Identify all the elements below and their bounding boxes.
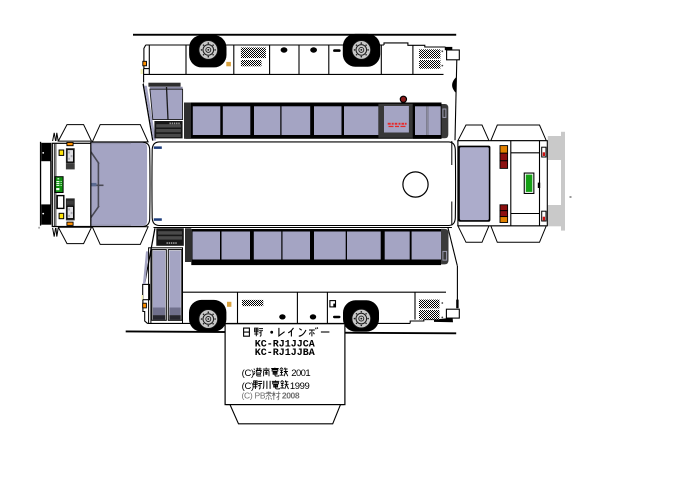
svg-text:KC-RJ1JJBA: KC-RJ1JJBA — [255, 348, 315, 359]
svg-text:2008: 2008 — [282, 390, 300, 400]
svg-text:(C): (C) — [242, 368, 254, 379]
svg-text:(C) PB: (C) PB — [242, 390, 266, 400]
svg-text:2001: 2001 — [291, 368, 310, 379]
